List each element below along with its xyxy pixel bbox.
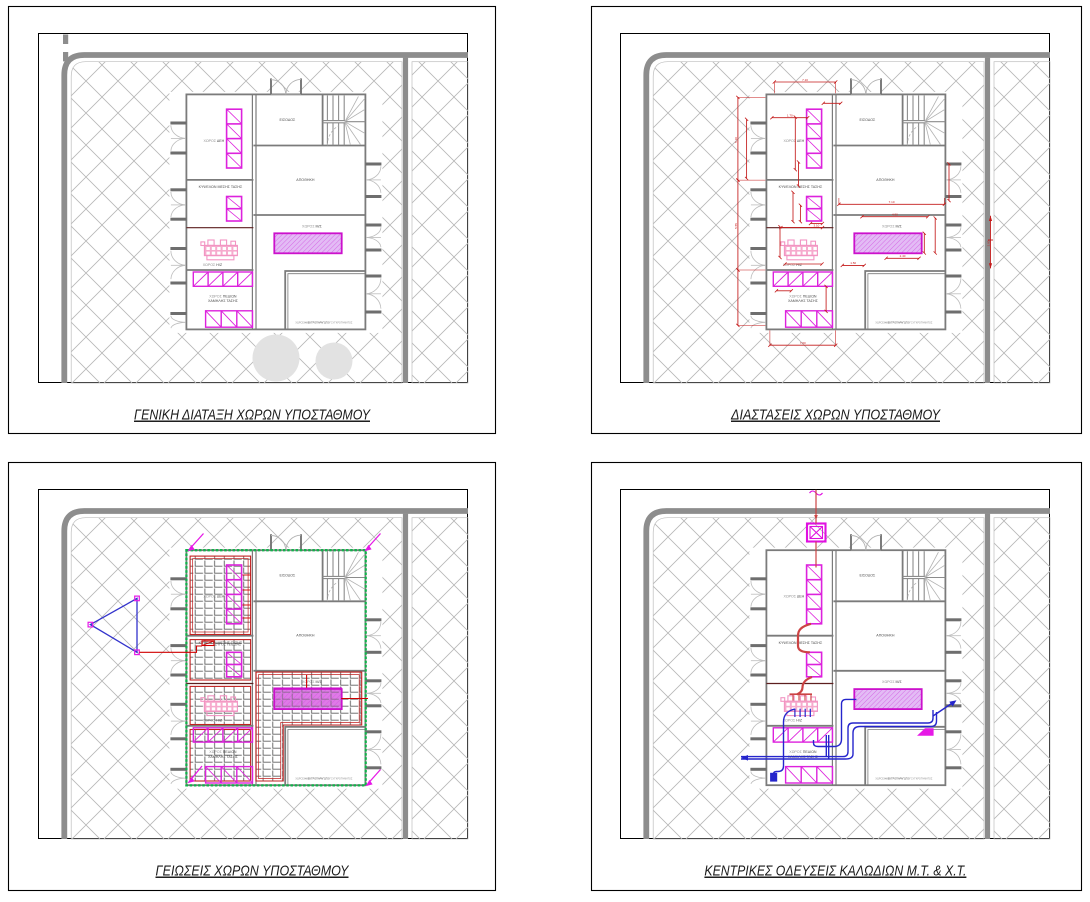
- svg-text:4.90: 4.90: [892, 213, 898, 217]
- svg-text:ΓΕΝΙΚΗ ΔΙΑΤΑΞΗ ΧΩΡΩΝ ΥΠΟΣΤΑΘΜΟ: ΓΕΝΙΚΗ ΔΙΑΤΑΞΗ ΧΩΡΩΝ ΥΠΟΣΤΑΘΜΟΥ: [134, 408, 371, 424]
- svg-text:ΖΥΓΟΣ ΓΕΙΩΣΗΣ: ΖΥΓΟΣ ΓΕΙΩΣΗΣ: [215, 643, 241, 647]
- svg-text:5.10: 5.10: [734, 137, 738, 143]
- svg-text:7.60: 7.60: [800, 341, 806, 345]
- svg-text:3.60: 3.60: [987, 240, 991, 246]
- svg-text:7.10: 7.10: [802, 78, 808, 82]
- svg-text:3.10: 3.10: [813, 223, 819, 227]
- svg-text:5.55: 5.55: [734, 223, 738, 229]
- svg-text:ΔΙΑΣΤΑΣΕΙΣ ΧΩΡΩΝ ΥΠΟΣΤΑΘΜΟΥ: ΔΙΑΣΤΑΣΕΙΣ ΧΩΡΩΝ ΥΠΟΣΤΑΘΜΟΥ: [730, 408, 941, 424]
- svg-text:ΚΕΝΤΡΙΚΕΣ ΟΔΕΥΣΕΙΣ ΚΑΛΩΔΙΩΝ Μ.: ΚΕΝΤΡΙΚΕΣ ΟΔΕΥΣΕΙΣ ΚΑΛΩΔΙΩΝ Μ.Τ. & Χ.Τ.: [704, 864, 966, 880]
- svg-text:ΓΕΙΩΣΕΙΣ ΧΩΡΩΝ ΥΠΟΣΤΑΘΜΟΥ: ΓΕΙΩΣΕΙΣ ΧΩΡΩΝ ΥΠΟΣΤΑΘΜΟΥ: [156, 864, 350, 880]
- svg-text:7.10: 7.10: [889, 200, 895, 204]
- svg-text:1.70: 1.70: [787, 114, 793, 118]
- svg-text:2.40: 2.40: [900, 254, 906, 258]
- svg-text:1.50: 1.50: [850, 261, 856, 265]
